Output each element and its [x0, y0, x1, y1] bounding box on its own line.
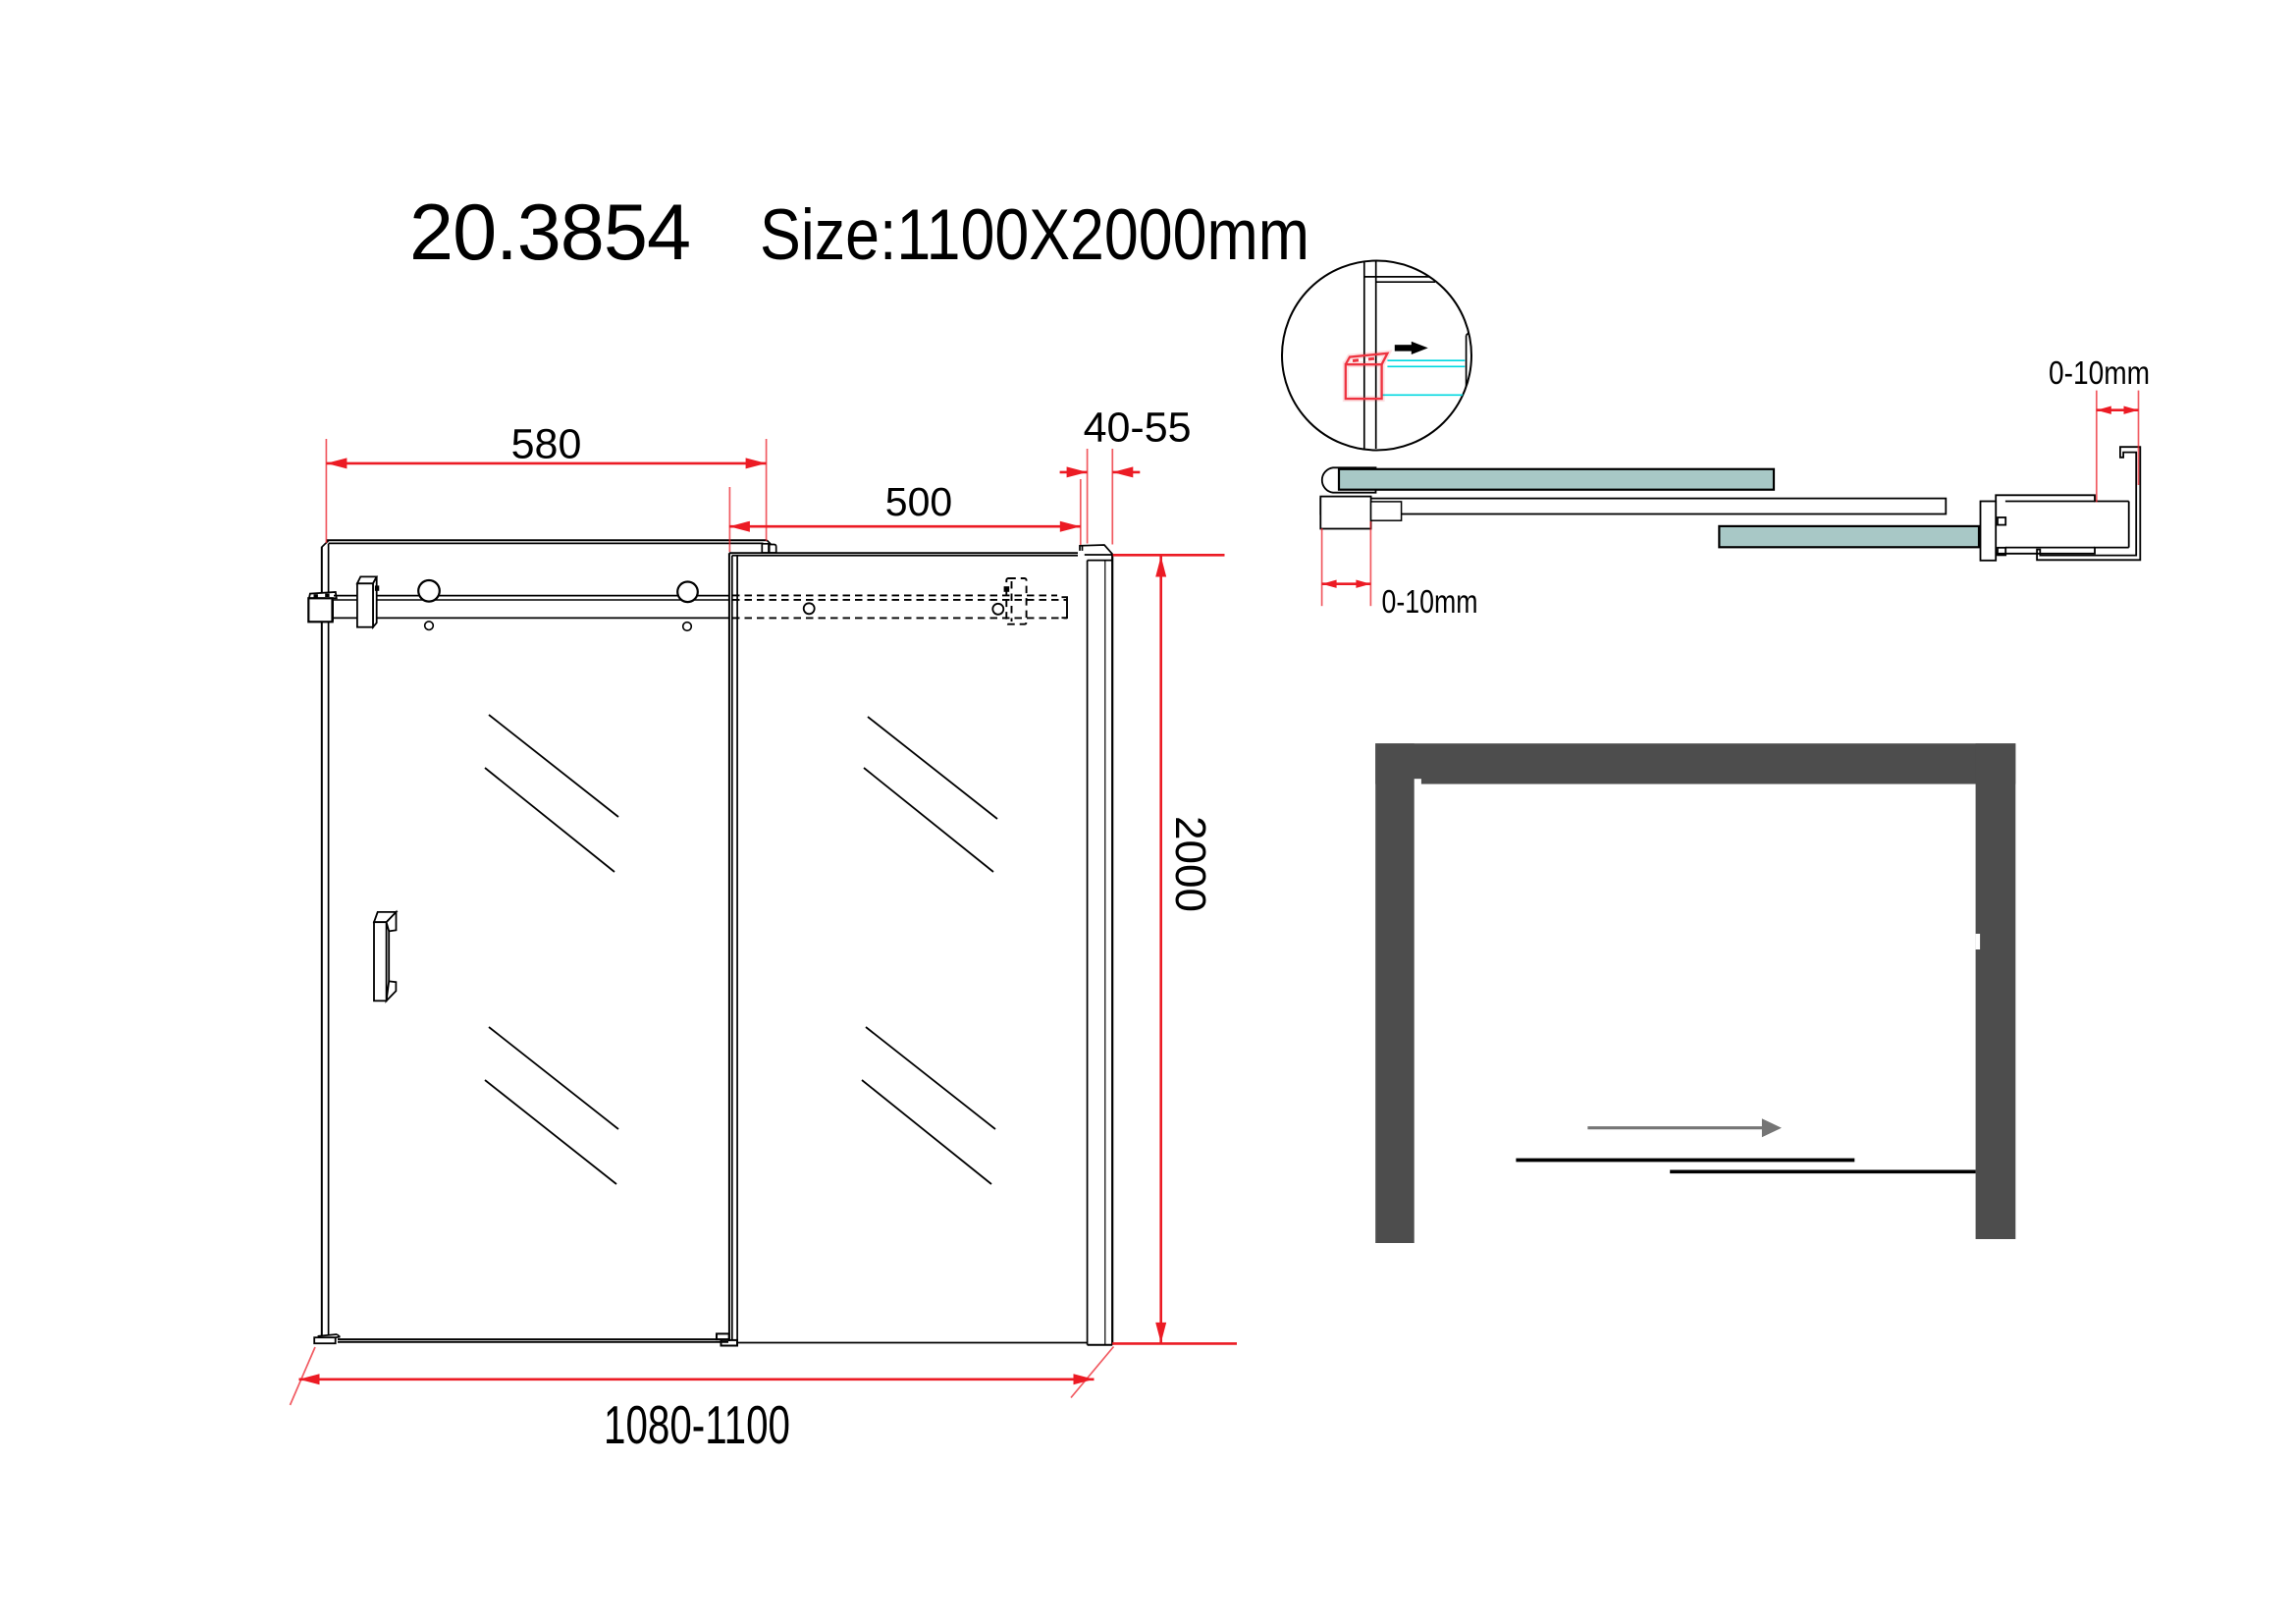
svg-text:0-10mm: 0-10mm	[2049, 354, 2150, 391]
svg-text:0-10mm: 0-10mm	[1382, 583, 1478, 620]
svg-text:1080-1100: 1080-1100	[604, 1394, 790, 1455]
svg-text:Size:1100X2000mm: Size:1100X2000mm	[760, 195, 1309, 275]
svg-text:2000: 2000	[1166, 816, 1214, 912]
svg-text:40-55: 40-55	[1084, 405, 1192, 452]
svg-text:20.3854: 20.3854	[409, 189, 691, 277]
svg-text:500: 500	[885, 479, 952, 524]
svg-text:580: 580	[511, 421, 582, 468]
